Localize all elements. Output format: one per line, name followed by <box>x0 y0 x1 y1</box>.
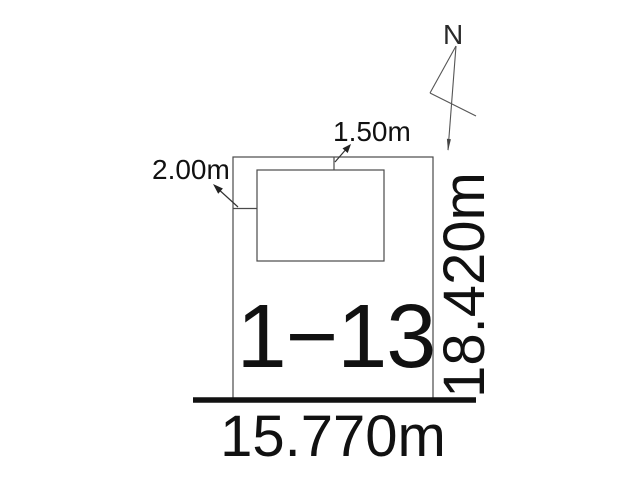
building-left-offset-label: 2.00m <box>152 156 230 184</box>
parcel-number-label: 1−13 <box>236 292 436 382</box>
right-height-dimension-label: 18.420m <box>436 172 494 398</box>
north-arrow-shaft <box>448 46 456 150</box>
north-label: N <box>443 19 463 50</box>
building-top-offset-label: 1.50m <box>333 118 411 146</box>
north-arrow-left-edge <box>430 46 456 93</box>
plot-drawing-canvas: N 2.00m 1.50m 1−13 15.770m 18.420m <box>0 0 640 480</box>
bottom-width-dimension-label: 15.770m <box>220 408 446 466</box>
building-outline <box>257 170 384 261</box>
north-arrow-icon <box>430 46 476 150</box>
north-arrow-crossbar <box>430 93 476 116</box>
north-arrow-tip <box>447 139 451 151</box>
